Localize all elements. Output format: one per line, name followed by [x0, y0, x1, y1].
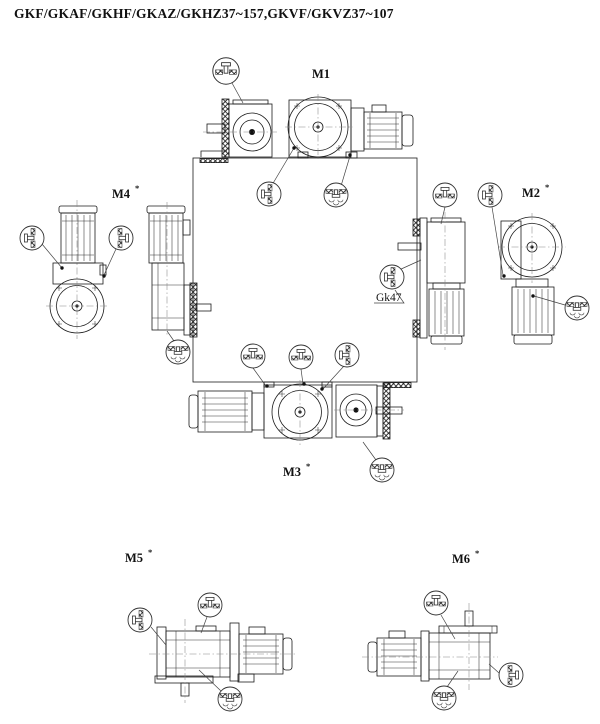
vent-plug-icon [289, 345, 313, 369]
oil-drain-plug-icon [565, 296, 589, 320]
oil-level-plug-icon [257, 182, 281, 206]
vent-plug-icon [198, 593, 222, 617]
label-m4: M4 [112, 187, 131, 201]
leader-lines [42, 83, 565, 691]
m1-drawing [200, 94, 413, 163]
catalog-page: GKF/GKAF/GKHF/GKAZ/GKHZ37~157,GKVF/GKVZ3… [0, 0, 600, 724]
label-m2-mark: * [545, 182, 549, 192]
oil-level-plug-icon [128, 608, 152, 632]
label-m2: M2 [522, 186, 540, 200]
mounting-positions-figure: M1 M2 * M3 * M4 * M5 * M6 * Gk47 [0, 0, 600, 724]
oil-level-plug-icon [20, 226, 44, 250]
oil-drain-plug-icon [166, 340, 190, 364]
vent-plug-icon [433, 183, 457, 207]
oil-drain-plug-icon [432, 686, 456, 710]
m4-drawing [46, 200, 211, 339]
label-m4-mark: * [135, 183, 139, 193]
label-m5: M5 [125, 551, 143, 565]
label-m6: M6 [452, 552, 470, 566]
oil-drain-plug-icon [218, 687, 242, 711]
m6-drawing [362, 603, 498, 690]
label-m6-mark: * [475, 548, 479, 558]
vent-plug-icon [241, 344, 265, 368]
label-m3-mark: * [306, 461, 310, 471]
m2-drawing [398, 212, 566, 350]
oil-level-plug-icon [478, 183, 502, 207]
oil-level-plug-icon [499, 663, 523, 687]
oil-level-plug-icon [109, 226, 133, 250]
vent-plug-icon [213, 58, 239, 84]
label-m3: M3 [283, 465, 301, 479]
label-m5-mark: * [148, 547, 152, 557]
vent-plug-icon [424, 591, 448, 615]
m3-drawing [189, 380, 411, 445]
oil-drain-plug-icon [324, 183, 348, 207]
oil-level-plug-icon [380, 265, 404, 289]
oil-drain-plug-icon [370, 458, 394, 482]
callout-gk47: Gk47 [376, 292, 402, 304]
oil-level-plug-icon [335, 343, 359, 367]
label-m1: M1 [312, 67, 330, 81]
